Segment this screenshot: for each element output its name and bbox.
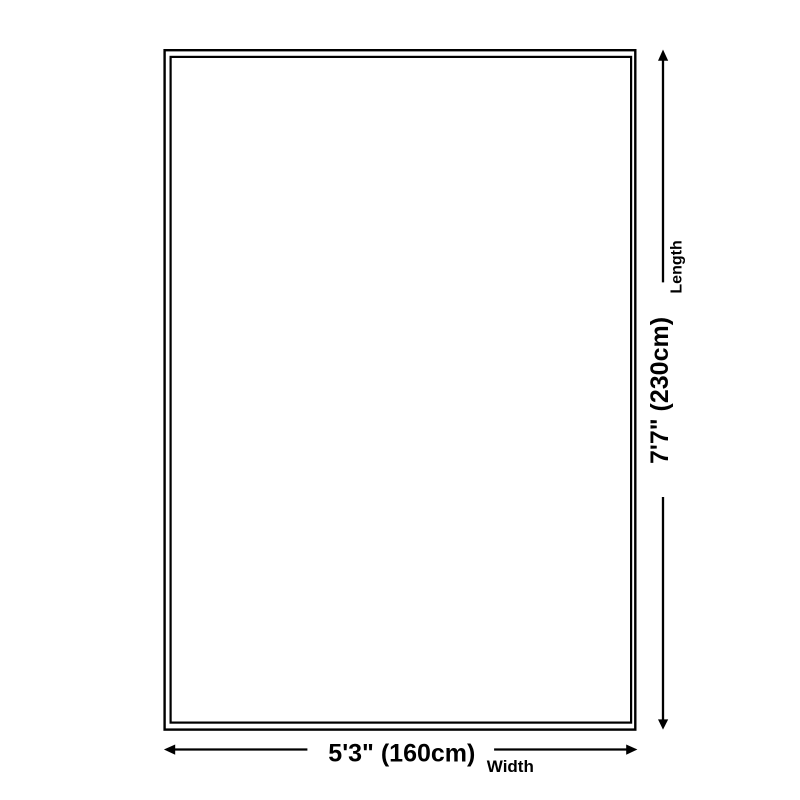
svg-text:7'7" (230cm): 7'7" (230cm) xyxy=(646,317,674,464)
svg-text:Length: Length xyxy=(669,240,686,293)
svg-text:5'3" (160cm): 5'3" (160cm) xyxy=(328,740,475,768)
svg-text:Width: Width xyxy=(487,757,534,776)
